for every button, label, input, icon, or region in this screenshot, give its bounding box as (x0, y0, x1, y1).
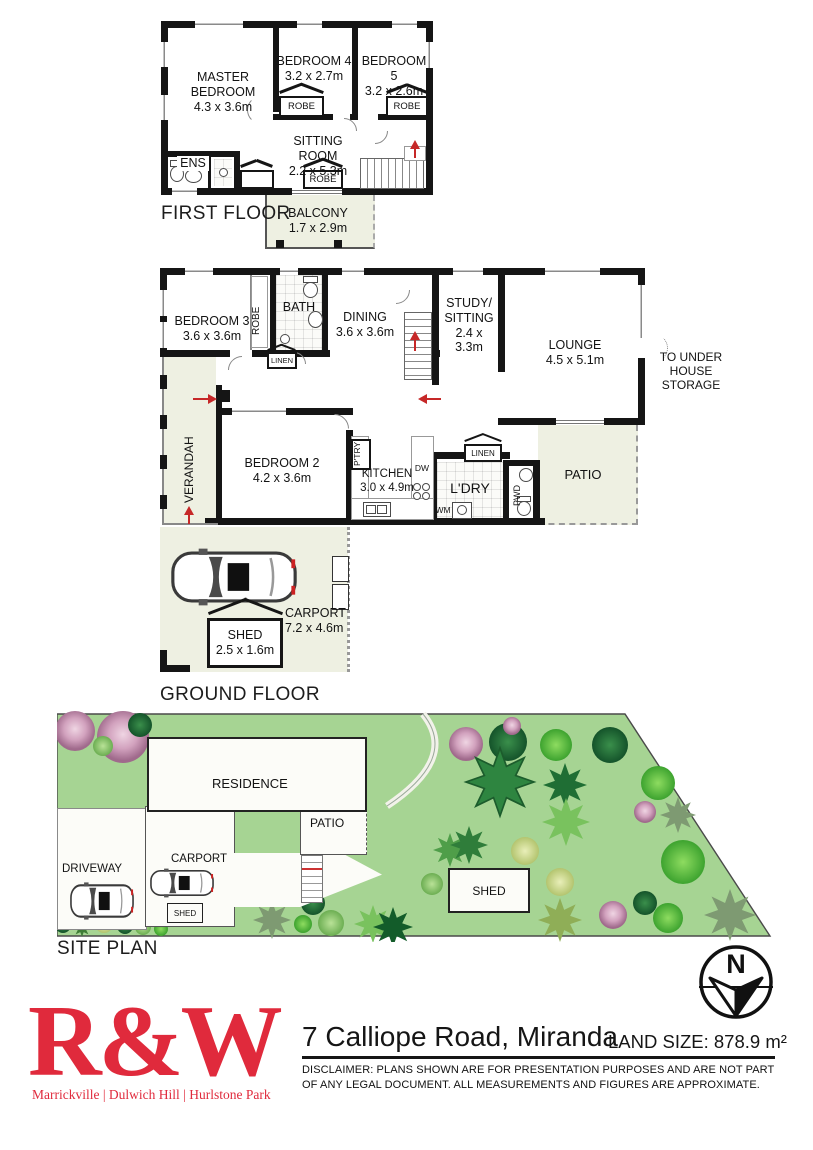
stairs-arrow (414, 339, 416, 351)
window (297, 21, 322, 28)
sliding-door (292, 188, 342, 195)
dm: 2.2 x 5.3m (286, 164, 350, 179)
robe-label: ROBE (281, 98, 322, 115)
circle (653, 903, 683, 933)
linen-cupboard: LINEN (267, 352, 297, 369)
robe-closet (240, 170, 274, 189)
stairs-arrow (410, 331, 420, 340)
window (161, 42, 168, 67)
rf (482, 433, 501, 442)
circle (540, 729, 572, 761)
window (160, 290, 167, 316)
robe-closet: ROBE (279, 96, 324, 117)
room-label-dining: DINING3.6 x 3.6m (335, 310, 395, 340)
window (195, 21, 243, 28)
stairs-arrow (414, 148, 416, 158)
room-label-kitchen: KITCHEN3.0 x 4.9m (360, 468, 414, 495)
carport-door (332, 556, 349, 582)
circle (294, 915, 312, 933)
first-floor-title: FIRST FLOOR (161, 203, 291, 225)
site-steps (301, 855, 323, 903)
wall (498, 268, 505, 372)
nm: LOUNGE (545, 338, 605, 353)
room-label-ldry: L'DRY (440, 480, 500, 497)
site-carport-label: CARPORT (171, 853, 227, 865)
circle (128, 713, 152, 737)
balcony-post (276, 240, 284, 248)
robe-closet: ROBE (386, 96, 428, 117)
wall (270, 268, 276, 357)
use (450, 826, 488, 864)
rf (465, 433, 484, 442)
entry-arrow (193, 398, 208, 400)
window (232, 408, 286, 415)
sliding-door (556, 418, 604, 425)
verandah-post (160, 495, 167, 509)
rf (241, 159, 258, 168)
circle (511, 837, 539, 865)
car-icon (170, 548, 298, 606)
site-garden-shed-label: SHED (472, 884, 505, 898)
window (638, 285, 645, 340)
verandah-post (160, 415, 167, 429)
stove-icon (413, 492, 421, 500)
window (453, 268, 483, 275)
car-icon (150, 868, 214, 898)
dm: 7.2 x 4.6m (285, 621, 351, 636)
span: SHED (228, 628, 263, 643)
floorplan-page: ROBE ROBE ROBE MASTER BEDROOM4.3 x 3.6m … (0, 0, 813, 1150)
divider (302, 1056, 775, 1059)
nm: HOUSE (648, 364, 734, 378)
sink-icon (366, 505, 376, 514)
shower-icon (219, 168, 228, 177)
stove-icon (422, 483, 430, 491)
window (280, 268, 298, 275)
room-label-sitting: SITTING ROOM2.2 x 5.3m (286, 134, 350, 178)
dm: 3.6 x 3.6m (335, 325, 395, 340)
nm: STUDY/ (440, 296, 498, 311)
nm: MASTER BEDROOM (180, 70, 266, 100)
nm: BEDROOM 4 (276, 54, 352, 69)
window (392, 21, 417, 28)
use (542, 798, 590, 846)
entry-arrow (208, 394, 217, 404)
use (704, 889, 756, 941)
room-label-bed5: BEDROOM 53.2 x 2.6m (358, 54, 430, 98)
disclaimer-line2: OF ANY LEGAL DOCUMENT. ALL MEASUREMENTS … (302, 1078, 782, 1093)
nm: STORAGE (648, 378, 734, 392)
site-residence-label: RESIDENCE (212, 776, 288, 791)
site-shed-label: SHED (174, 909, 196, 918)
dw-label: DW (413, 463, 431, 473)
linen-label: LINEN (269, 354, 295, 367)
site-steps-mark (302, 868, 322, 870)
wall (533, 460, 540, 525)
nm: CARPORT (285, 606, 351, 621)
use (660, 797, 696, 833)
nm: BEDROOM 3 (172, 314, 252, 329)
site-garden-shed-outline: SHED (448, 868, 530, 913)
use (466, 748, 534, 816)
sink-icon (377, 505, 387, 514)
toilet-icon (303, 282, 318, 298)
nm: TO UNDER (648, 350, 734, 364)
robe-label: ROBE (251, 293, 262, 335)
entry-arrow (188, 514, 190, 524)
robe-label: ROBE (388, 98, 426, 115)
pantry-label: P'TRY (352, 442, 362, 466)
circle (661, 840, 705, 884)
circle (503, 717, 521, 735)
entry-arrow (418, 394, 427, 404)
circle (449, 727, 483, 761)
dm: 3.0 x 4.9m (360, 482, 414, 496)
carport-label: CARPORT7.2 x 4.6m (285, 606, 351, 636)
circle (633, 891, 657, 915)
room-label-patio: PATIO (553, 467, 613, 482)
use (173, 549, 295, 606)
shed-label: SHED2.5 x 1.6m (210, 621, 280, 665)
site-driveway-label: DRIVEWAY (62, 863, 122, 875)
rf (279, 83, 302, 94)
circle (421, 873, 443, 895)
window (172, 188, 197, 195)
dm: 4.2 x 3.6m (243, 471, 321, 486)
site-plan-title: SITE PLAN (57, 938, 158, 960)
car-icon (70, 882, 134, 920)
nm: SITTING (440, 311, 498, 326)
north-arrow-icon: N (692, 942, 780, 1024)
wall (160, 350, 230, 357)
room-label-bath: BATH (277, 300, 321, 315)
site-patio-label: PATIO (310, 816, 344, 830)
dm: 4.5 x 5.1m (545, 353, 605, 368)
wall (160, 665, 190, 672)
stove-icon (422, 492, 430, 500)
shower-icon (280, 334, 290, 344)
nm: BEDROOM 5 (358, 54, 430, 84)
entry-arrow (184, 506, 194, 515)
dm: 3.6 x 3.6m (172, 329, 252, 344)
circle (599, 901, 627, 929)
shed-outline: SHED2.5 x 1.6m (207, 618, 283, 668)
room-label-bed2: BEDROOM 24.2 x 3.6m (243, 456, 321, 486)
basin-icon (185, 169, 202, 183)
circle (641, 766, 675, 800)
door-leaf (222, 390, 230, 402)
balcony-post (334, 240, 342, 248)
disclaimer-line1: DISCLAIMER: PLANS SHOWN ARE FOR PRESENTA… (302, 1063, 782, 1078)
wall (216, 385, 222, 525)
dm: 3.2 x 2.7m (276, 69, 352, 84)
nm: BEDROOM 2 (243, 456, 321, 471)
nm: KITCHEN (360, 468, 414, 482)
room-label-ens: ENS (177, 156, 209, 171)
use (538, 898, 582, 942)
verandah-post (160, 375, 167, 389)
verandah-edge (162, 523, 218, 525)
verandah-label: VERANDAH (182, 408, 196, 503)
disclaimer: DISCLAIMER: PLANS SHOWN ARE FOR PRESENTA… (302, 1063, 782, 1094)
circle (318, 910, 344, 936)
circle (546, 868, 574, 896)
room-label-master: MASTER BEDROOM4.3 x 3.6m (180, 70, 266, 114)
window (160, 322, 167, 348)
use (151, 869, 213, 898)
window (161, 95, 168, 120)
wall (503, 460, 509, 518)
stairs (404, 312, 432, 380)
washing-machine-icon (457, 505, 467, 515)
wm-label: WM (435, 505, 451, 515)
site-shed-outline: SHED (167, 903, 203, 923)
use (543, 763, 587, 807)
dm: 1.7 x 2.9m (285, 221, 351, 236)
room-label-study: STUDY/SITTING2.4 x 3.3m (440, 296, 498, 355)
room-label-balcony: BALCONY1.7 x 2.9m (285, 206, 351, 236)
circle (634, 801, 656, 823)
wall (322, 268, 328, 357)
site-residence-outline (147, 737, 367, 812)
agency-logo: R&W (28, 995, 280, 1089)
window (545, 268, 600, 275)
nm: BALCONY (285, 206, 351, 221)
room-label-bed3: BEDROOM 33.6 x 3.6m (172, 314, 252, 344)
door-arc (376, 270, 416, 310)
use (71, 882, 133, 919)
ground-floor-title: GROUND FLOOR (160, 684, 320, 706)
room-label-lounge: LOUNGE4.5 x 5.1m (545, 338, 605, 368)
entry-arrow (427, 398, 441, 400)
dm: 2.4 x 3.3m (440, 326, 498, 356)
dm: 4.3 x 3.6m (180, 100, 266, 115)
window (185, 268, 213, 275)
window (342, 268, 364, 275)
dm: 3.2 x 2.6m (358, 84, 430, 99)
span: 2.5 x 1.6m (216, 643, 274, 658)
circle (592, 727, 628, 763)
storage-note: TO UNDERHOUSESTORAGE (648, 350, 734, 392)
rf (301, 83, 324, 94)
room-label-bed4: BEDROOM 43.2 x 2.7m (276, 54, 352, 84)
linen-label: LINEN (466, 446, 500, 460)
land-size: LAND SIZE: 878.9 m² (608, 1031, 787, 1053)
nm: DINING (335, 310, 395, 325)
property-address: 7 Calliope Road, Miranda (302, 1021, 618, 1053)
stairs (360, 158, 424, 189)
linen-cupboard: LINEN (464, 444, 502, 462)
wall (430, 452, 466, 459)
wall (432, 268, 439, 385)
rf (256, 159, 273, 168)
stairs-arrow (410, 140, 420, 149)
circle (93, 736, 113, 756)
verandah-post (160, 455, 167, 469)
stove-icon (413, 483, 421, 491)
north-letter: N (726, 949, 746, 979)
agency-offices: Marrickville | Dulwich Hill | Hurlstone … (32, 1087, 271, 1103)
pwd-label: PWD (512, 476, 522, 506)
nm: SITTING ROOM (286, 134, 350, 164)
